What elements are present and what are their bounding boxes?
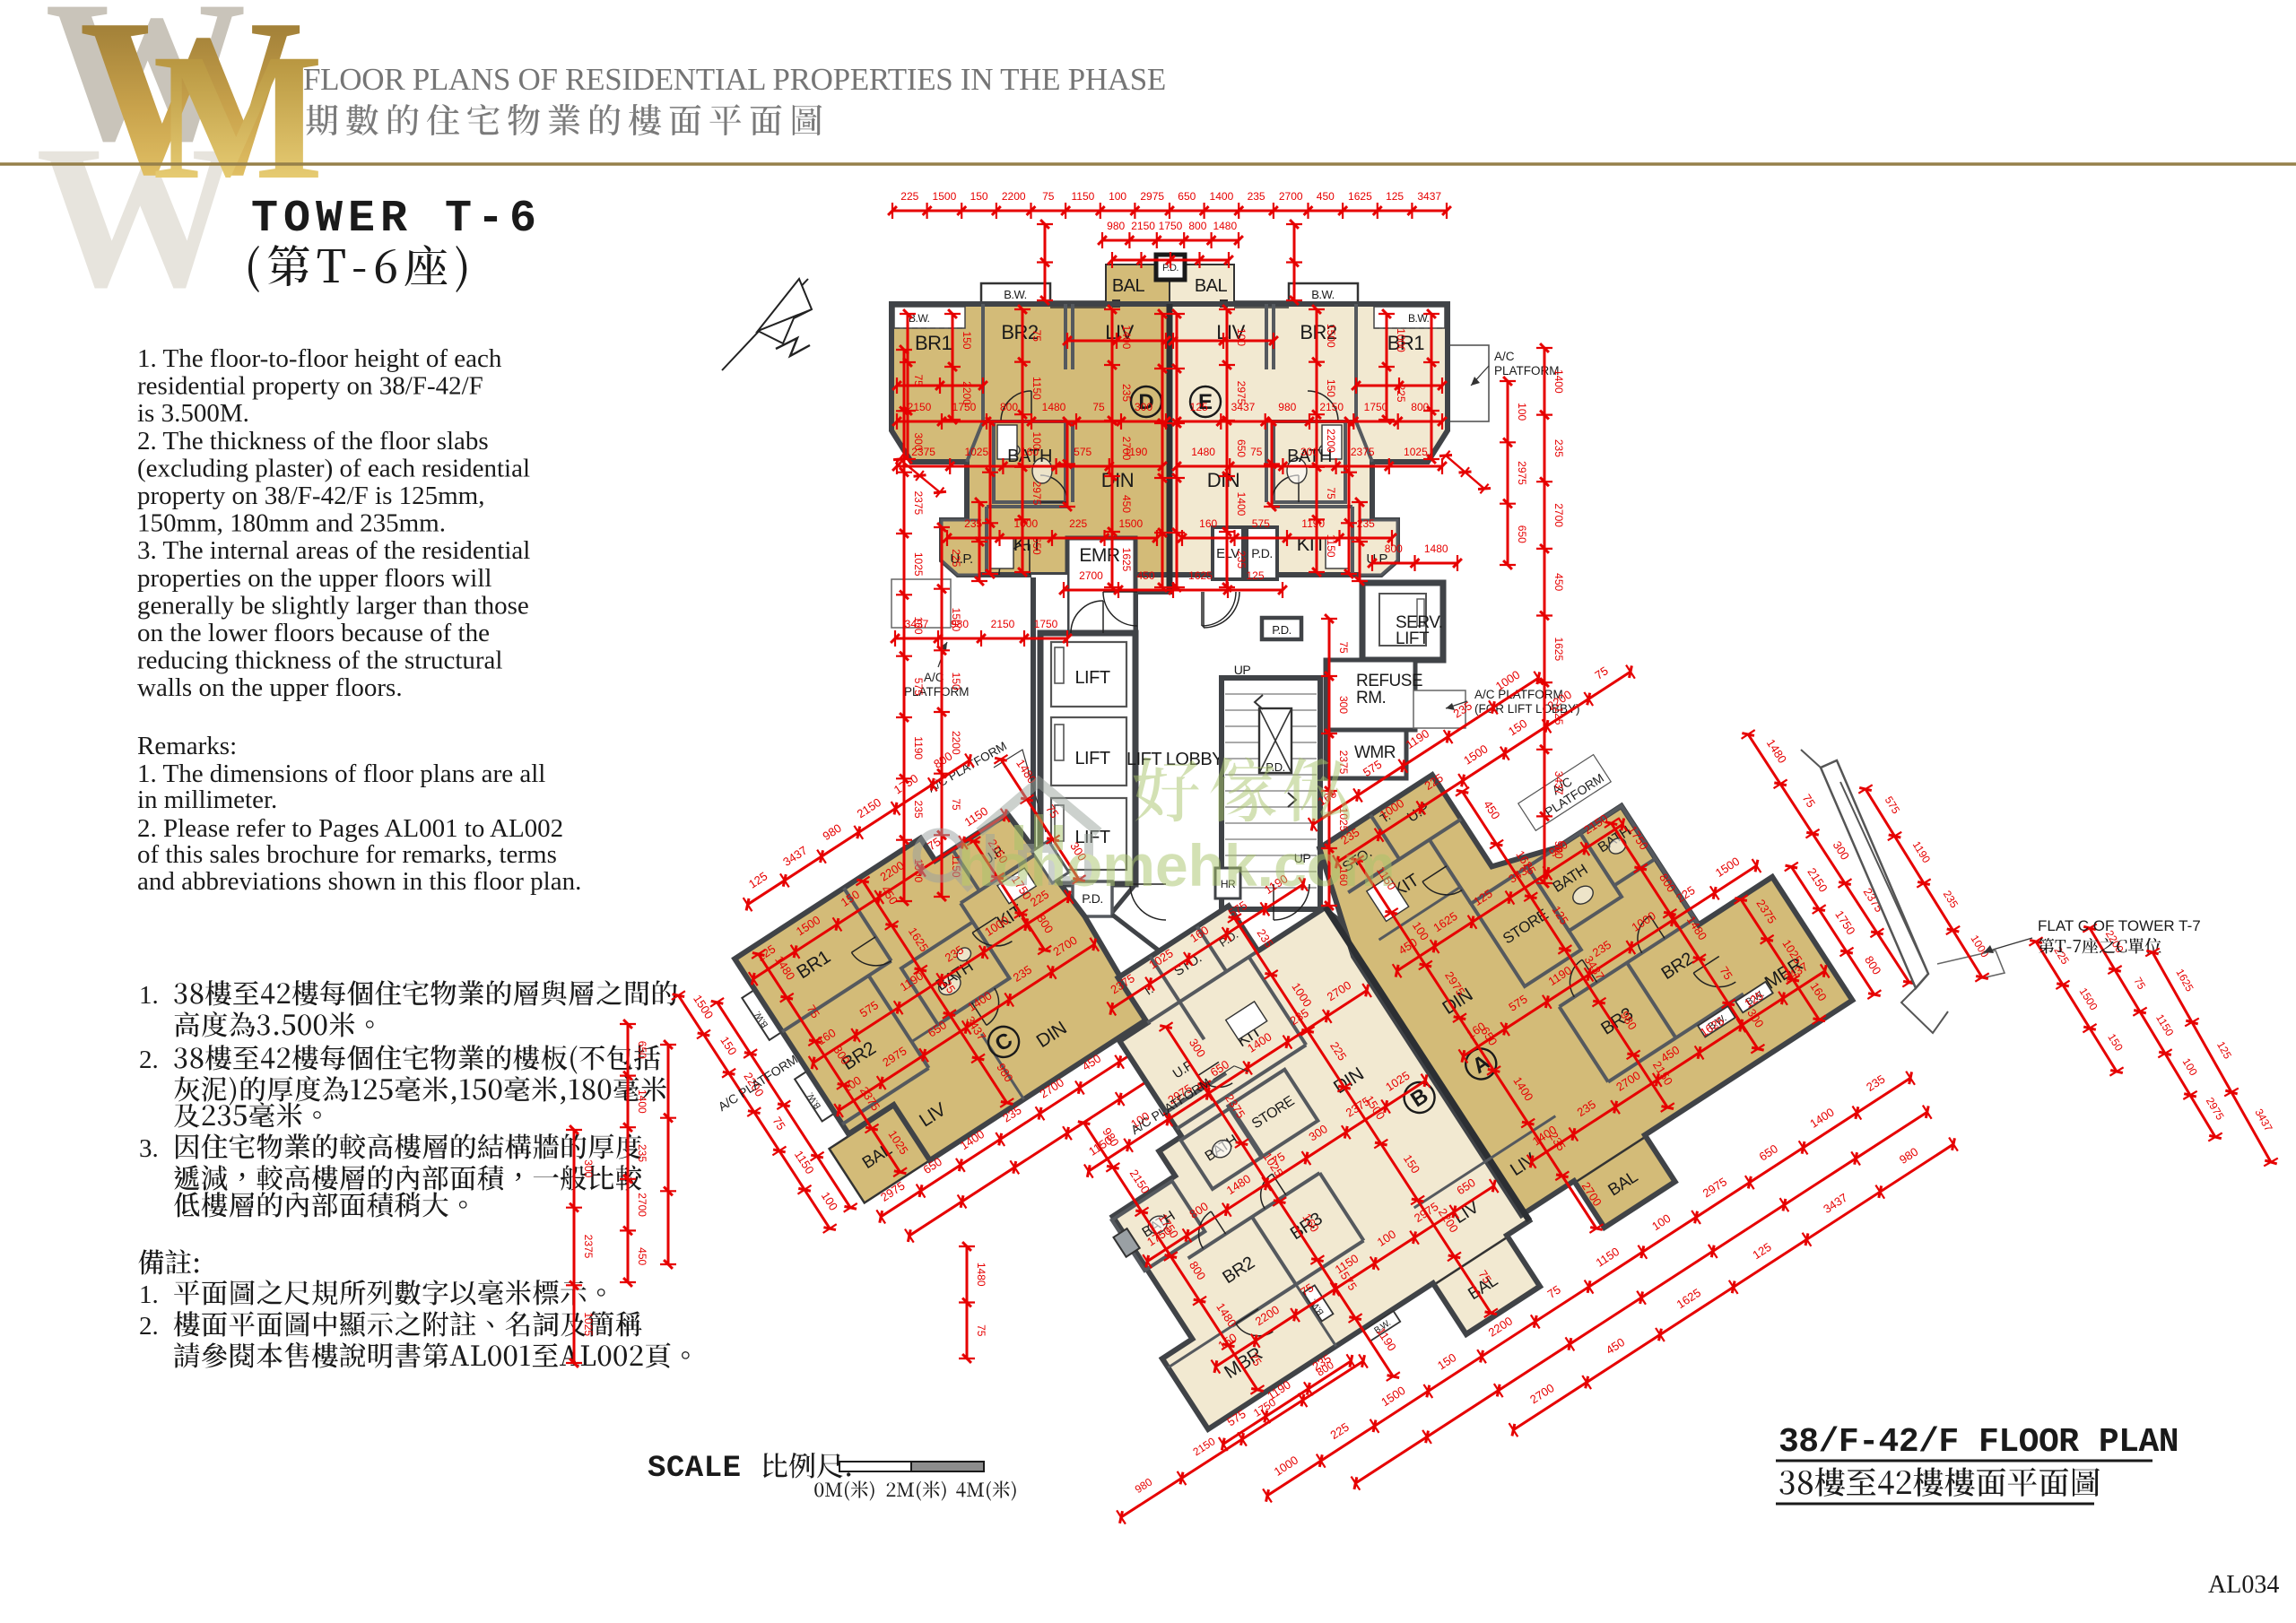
svg-text:properties on the upper floors: properties on the upper floors will	[137, 564, 491, 593]
svg-text:575: 575	[912, 678, 925, 696]
svg-text:300: 300	[582, 1159, 595, 1177]
svg-text:150: 150	[961, 331, 973, 349]
svg-text:2200: 2200	[1002, 190, 1026, 203]
svg-text:generally be slightly larger t: generally be slightly larger than those	[137, 591, 529, 620]
svg-text:235: 235	[1235, 551, 1248, 568]
svg-text:1150: 1150	[1325, 534, 1337, 558]
svg-text:300: 300	[1337, 696, 1350, 714]
svg-text:980: 980	[1278, 401, 1296, 413]
svg-text:and abbreviations shown in thi: and abbreviations shown in this floor pl…	[137, 867, 581, 896]
svg-text:2375: 2375	[1351, 446, 1375, 458]
svg-text:75: 75	[975, 1324, 987, 1337]
svg-text:1. The dimensions of floor pla: 1. The dimensions of floor plans are all	[137, 759, 545, 788]
svg-text:100: 100	[1031, 431, 1043, 449]
svg-text:235: 235	[1248, 190, 1265, 203]
svg-text:1480: 1480	[1042, 401, 1066, 413]
svg-text:1480: 1480	[975, 1263, 987, 1287]
svg-text:800: 800	[1385, 542, 1403, 555]
svg-text:1500: 1500	[1325, 324, 1337, 348]
svg-text:1400: 1400	[1552, 369, 1565, 394]
svg-text:2.: 2.	[139, 1312, 159, 1341]
svg-text:1.: 1.	[139, 981, 159, 1010]
svg-text:1625: 1625	[1120, 548, 1133, 572]
svg-text:1. The floor-to-floor height o: 1. The floor-to-floor height of each	[137, 344, 502, 373]
svg-text:450: 450	[1136, 569, 1154, 582]
svg-text:650: 650	[1516, 525, 1528, 543]
svg-text:125: 125	[1386, 190, 1404, 203]
svg-text:3.: 3.	[139, 1134, 159, 1163]
svg-text:1400: 1400	[1235, 492, 1248, 516]
svg-text:1500: 1500	[933, 190, 957, 203]
svg-text:75: 75	[1325, 487, 1337, 499]
svg-text:of this sales brochure for rem: of this sales brochure for remarks, term…	[137, 840, 557, 869]
svg-text:1025: 1025	[912, 552, 925, 577]
svg-text:KIT: KIT	[1297, 533, 1326, 555]
svg-text:1625: 1625	[1188, 569, 1213, 582]
svg-text:100: 100	[1235, 328, 1248, 346]
svg-text:160: 160	[1199, 517, 1217, 530]
svg-text:LIFT: LIFT	[1396, 629, 1430, 648]
svg-text:2. The thickness of the floor: 2. The thickness of the floor slabs	[137, 427, 489, 456]
svg-text:1480: 1480	[1424, 542, 1448, 555]
svg-text:property on 38/F-42/F is 125mm: property on 38/F-42/F is 125mm,	[137, 482, 484, 510]
svg-text:RM.: RM.	[1356, 689, 1386, 707]
svg-text:LIFT: LIFT	[1074, 668, 1109, 688]
svg-text:1480: 1480	[1213, 220, 1237, 232]
svg-text:2975: 2975	[1235, 381, 1248, 405]
svg-text:235: 235	[1120, 384, 1133, 402]
svg-text:BAL: BAL	[1195, 276, 1228, 296]
svg-text:FLOOR PLANS OF RESIDENTIAL PRO: FLOOR PLANS OF RESIDENTIAL PROPERTIES IN…	[303, 62, 1166, 97]
svg-text:BAL: BAL	[1112, 276, 1145, 296]
svg-text:A/C: A/C	[1494, 350, 1515, 363]
svg-text:75: 75	[1337, 641, 1350, 654]
svg-text:1150: 1150	[1031, 377, 1043, 400]
svg-text:is 3.500M.: is 3.500M.	[137, 399, 249, 428]
svg-text:LIFT LOBBY: LIFT LOBBY	[1126, 750, 1223, 769]
svg-text:P.D.: P.D.	[1272, 623, 1291, 637]
svg-text:1480: 1480	[1191, 446, 1215, 458]
svg-text:Remarks:: Remarks:	[137, 732, 237, 760]
svg-text:650: 650	[1235, 439, 1248, 457]
svg-text:150: 150	[970, 190, 988, 203]
svg-text:2700: 2700	[1279, 190, 1303, 203]
svg-text:235: 235	[1552, 439, 1565, 457]
svg-text:1625: 1625	[1552, 637, 1565, 661]
svg-text:75: 75	[1250, 446, 1263, 458]
svg-text:1190: 1190	[912, 736, 925, 759]
svg-text:2700: 2700	[1079, 569, 1103, 582]
svg-text:SCALE: SCALE	[648, 1452, 742, 1486]
svg-text:LIFT: LIFT	[1074, 749, 1109, 768]
svg-text:3. The internal areas of the r: 3. The internal areas of the residential	[137, 536, 530, 565]
svg-text:2375: 2375	[582, 1235, 595, 1259]
svg-text:235: 235	[636, 1144, 648, 1162]
svg-text:1750: 1750	[1364, 401, 1388, 413]
svg-text:2150: 2150	[991, 618, 1015, 630]
svg-text:B.W.: B.W.	[1311, 288, 1334, 301]
svg-text:300: 300	[1135, 401, 1152, 413]
svg-text:AL034: AL034	[2208, 1571, 2279, 1599]
svg-text:2200: 2200	[950, 731, 962, 755]
svg-text:B.W.: B.W.	[1004, 288, 1026, 301]
svg-text:150: 150	[1325, 379, 1337, 397]
svg-text:residential property on 38/F-4: residential property on 38/F-42/F	[137, 372, 483, 401]
svg-text:1750: 1750	[1034, 618, 1058, 630]
svg-text:2975: 2975	[1140, 190, 1164, 203]
svg-text:2.: 2.	[139, 1046, 159, 1074]
svg-text:2150: 2150	[1131, 220, 1155, 232]
svg-text:2375: 2375	[911, 446, 935, 458]
svg-text:450: 450	[636, 1247, 648, 1265]
svg-text:2. Please refer to Pages AL001: 2. Please refer to Pages AL001 to AL002	[137, 814, 563, 843]
svg-text:225: 225	[950, 549, 962, 567]
svg-text:1400: 1400	[1120, 325, 1133, 350]
svg-text:2975: 2975	[1031, 482, 1043, 506]
svg-text:3437: 3437	[1552, 771, 1565, 795]
svg-text:PLATFORM: PLATFORM	[1494, 364, 1560, 378]
svg-text:650: 650	[636, 1041, 648, 1059]
svg-text:125: 125	[1190, 401, 1208, 413]
svg-text:1025: 1025	[964, 446, 988, 458]
svg-text:450: 450	[1552, 573, 1565, 591]
svg-text:1000: 1000	[1395, 328, 1407, 352]
svg-text:hohomehk.com: hohomehk.com	[958, 832, 1396, 898]
svg-text:450: 450	[1317, 190, 1335, 203]
svg-text:3437: 3437	[905, 618, 929, 630]
svg-text:2700: 2700	[1120, 437, 1133, 461]
svg-text:1400: 1400	[636, 1089, 648, 1114]
svg-text:38/F-42/F FLOOR PLAN: 38/F-42/F FLOOR PLAN	[1779, 1423, 2179, 1462]
svg-text:1150: 1150	[1071, 190, 1094, 203]
svg-text:150: 150	[950, 673, 962, 690]
svg-text:2150: 2150	[1319, 401, 1344, 413]
svg-text:450: 450	[1120, 495, 1133, 513]
svg-text:reducing thickness of the stru: reducing thickness of the structural	[137, 647, 503, 675]
svg-text:EMR: EMR	[1079, 545, 1120, 566]
svg-text:75: 75	[950, 798, 962, 811]
svg-text:walls on the upper floors.: walls on the upper floors.	[137, 673, 403, 702]
svg-text:DIN: DIN	[1101, 469, 1134, 491]
svg-text:on the lower floors because of: on the lower floors because of the	[137, 619, 490, 647]
svg-text:800: 800	[1188, 220, 1206, 232]
svg-text:650: 650	[1031, 537, 1043, 555]
svg-text:980: 980	[1552, 841, 1565, 859]
svg-text:1025: 1025	[582, 1312, 595, 1336]
svg-text:1500: 1500	[1118, 517, 1143, 530]
svg-text:3437: 3437	[1417, 190, 1441, 203]
svg-text:1.: 1.	[139, 1280, 159, 1309]
svg-text:2700: 2700	[636, 1193, 648, 1217]
svg-text:575: 575	[1252, 517, 1270, 530]
svg-text:UP: UP	[1234, 663, 1251, 677]
svg-text:125: 125	[1552, 707, 1565, 725]
svg-text:980: 980	[1107, 220, 1125, 232]
svg-text:225: 225	[1069, 517, 1087, 530]
svg-text:REFUSE: REFUSE	[1356, 672, 1422, 690]
svg-text:2975: 2975	[1516, 461, 1528, 485]
svg-text:75: 75	[1092, 401, 1105, 413]
svg-text:800: 800	[1000, 401, 1018, 413]
svg-text:1025: 1025	[1404, 446, 1428, 458]
svg-text:225: 225	[900, 190, 918, 203]
svg-text:1750: 1750	[1159, 220, 1183, 232]
svg-text:1400: 1400	[1210, 190, 1234, 203]
svg-text:75: 75	[1031, 330, 1043, 343]
svg-text:100: 100	[1516, 403, 1528, 421]
svg-text:2200: 2200	[1325, 429, 1337, 453]
svg-text:BR1: BR1	[915, 332, 952, 354]
svg-text:in millimeter.: in millimeter.	[137, 785, 277, 814]
svg-text:150mm, 180mm and 235mm.: 150mm, 180mm and 235mm.	[137, 509, 446, 538]
svg-text:575: 575	[1074, 446, 1091, 458]
svg-text:P.D.: P.D.	[1251, 546, 1272, 560]
svg-text:235: 235	[912, 800, 925, 818]
svg-text:75: 75	[1042, 190, 1055, 203]
svg-text:FLAT C OF TOWER T-7: FLAT C OF TOWER T-7	[2038, 917, 2201, 934]
svg-text:650: 650	[1178, 190, 1196, 203]
svg-text:(excluding plaster) of each re: (excluding plaster) of each residential	[137, 454, 530, 482]
svg-text:2700: 2700	[1552, 503, 1565, 527]
svg-text:100: 100	[1109, 190, 1126, 203]
svg-text:M: M	[152, 16, 324, 217]
svg-text:1625: 1625	[1348, 190, 1372, 203]
svg-text:2375: 2375	[912, 490, 925, 515]
svg-text:TOWER T-6: TOWER T-6	[251, 194, 542, 245]
svg-text:125: 125	[1246, 569, 1264, 582]
svg-text:980: 980	[951, 618, 969, 630]
